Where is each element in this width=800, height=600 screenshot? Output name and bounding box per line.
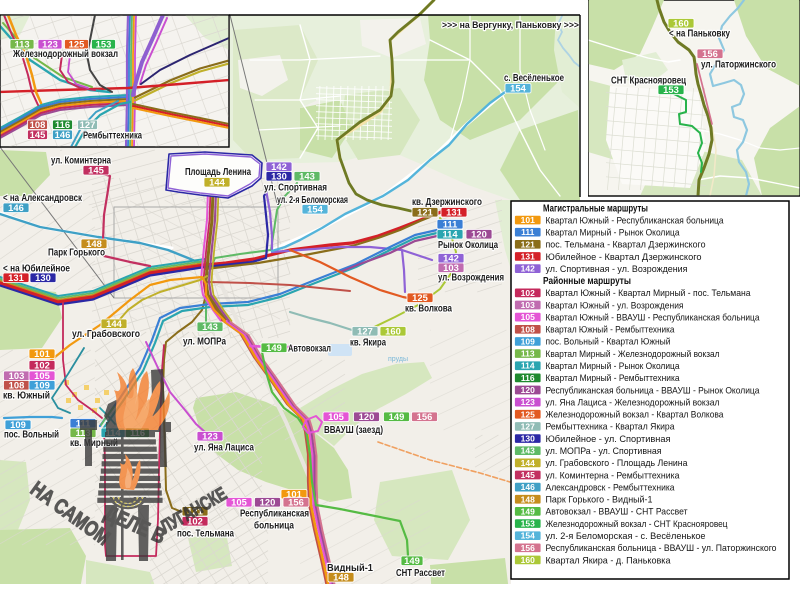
svg-text:121: 121 <box>417 206 433 217</box>
svg-text:ул. Возрождения: ул. Возрождения <box>438 273 504 284</box>
svg-text:130: 130 <box>35 272 51 283</box>
svg-text:153: 153 <box>663 84 679 95</box>
svg-text:123: 123 <box>521 397 535 407</box>
svg-text:143: 143 <box>521 446 535 456</box>
svg-text:142: 142 <box>521 264 535 274</box>
svg-text:Рембыттехника - Квартал Якира: Рембыттехника - Квартал Якира <box>546 422 676 433</box>
svg-text:кв. Якира: кв. Якира <box>350 338 386 349</box>
svg-text:153: 153 <box>521 519 535 529</box>
svg-text:ул. МОПРа: ул. МОПРа <box>183 337 226 348</box>
svg-text:109: 109 <box>34 379 50 390</box>
svg-text:105: 105 <box>328 411 344 422</box>
svg-text:120: 120 <box>521 385 535 395</box>
svg-text:125: 125 <box>412 292 428 303</box>
svg-text:Железнодорожный вокзал - СНТ К: Железнодорожный вокзал - СНТ Красноярове… <box>546 519 728 530</box>
svg-text:пос. Вольный - Квартал Южный: пос. Вольный - Квартал Южный <box>546 337 671 348</box>
svg-text:145: 145 <box>521 470 535 480</box>
svg-text:123: 123 <box>42 38 58 49</box>
svg-text:103: 103 <box>443 262 459 273</box>
svg-text:Республиканская больница - ВВА: Республиканская больница - ВВАУШ - ул. П… <box>546 543 777 554</box>
svg-text:121: 121 <box>521 239 535 249</box>
svg-text:Юбилейное - ул. Спортивная: Юбилейное - ул. Спортивная <box>546 434 671 445</box>
svg-text:Рынок Околица: Рынок Околица <box>438 240 498 251</box>
svg-text:143: 143 <box>299 170 315 181</box>
svg-text:102: 102 <box>34 359 50 370</box>
svg-text:< на Паньковку: < на Паньковку <box>669 29 730 40</box>
svg-text:Квартал Южный - ВВАУШ - Респуб: Квартал Южный - ВВАУШ - Республиканская … <box>546 313 761 324</box>
svg-text:Рембыттехника: Рембыттехника <box>83 130 142 142</box>
svg-text:120: 120 <box>260 496 276 507</box>
svg-text:113: 113 <box>521 349 535 359</box>
svg-text:131: 131 <box>8 272 24 283</box>
svg-text:127: 127 <box>521 421 535 431</box>
svg-text:Железнодорожный вокзал - Кварт: Железнодорожный вокзал - Квартал Волкова <box>546 410 725 421</box>
svg-text:Квартал Мирный - Железнодорожн: Квартал Мирный - Железнодорожный вокзал <box>546 349 720 360</box>
svg-text:Республиканская больница - ВВА: Республиканская больница - ВВАУШ - Рынок… <box>546 385 761 396</box>
svg-text:109: 109 <box>521 336 535 346</box>
svg-text:125: 125 <box>521 409 535 419</box>
svg-text:154: 154 <box>521 531 535 541</box>
svg-text:113: 113 <box>14 38 29 49</box>
svg-text:146: 146 <box>55 129 71 140</box>
svg-text:кв. Южный: кв. Южный <box>3 391 50 402</box>
svg-text:Автовокзал - ВВАУШ - СНТ Рассв: Автовокзал - ВВАУШ - СНТ Рассвет <box>546 507 689 518</box>
svg-text:123: 123 <box>202 430 218 441</box>
svg-text:153: 153 <box>96 38 112 49</box>
svg-text:пос. Тельмана: пос. Тельмана <box>177 529 234 540</box>
svg-text:Квартал Мирный - Рынок Околица: Квартал Мирный - Рынок Околица <box>546 361 681 372</box>
svg-text:больница: больница <box>254 520 294 532</box>
svg-text:ВВАУШ (заезд): ВВАУШ (заезд) <box>324 425 383 436</box>
svg-text:Юбилейное - Квартал Дзержин: Юбилейное - Квартал Дзержинского <box>546 252 702 263</box>
svg-text:116: 116 <box>521 373 535 383</box>
svg-text:160: 160 <box>521 555 535 565</box>
svg-text:127: 127 <box>357 325 373 336</box>
svg-text:148: 148 <box>521 494 535 504</box>
svg-text:160: 160 <box>385 325 401 336</box>
svg-text:ул. МОПРа - ул. Спортивная: ул. МОПРа - ул. Спортивная <box>546 446 662 457</box>
svg-text:Квартал Южный - Квартал Мирный: Квартал Южный - Квартал Мирный - пос. Те… <box>546 288 752 299</box>
svg-text:130: 130 <box>271 170 287 181</box>
svg-text:160: 160 <box>673 17 689 28</box>
svg-text:105: 105 <box>231 496 247 507</box>
svg-text:131: 131 <box>521 251 535 261</box>
svg-text:144: 144 <box>106 318 122 329</box>
svg-text:149: 149 <box>389 411 405 422</box>
svg-text:154: 154 <box>307 203 323 214</box>
svg-text:101: 101 <box>521 215 535 225</box>
svg-text:ул. Яна Лациса - Железнодорожн: ул. Яна Лациса - Железнодорожный вокзал <box>546 397 720 408</box>
svg-text:пос. Тельмана - Квартал Дзержи: пос. Тельмана - Квартал Дзержинского <box>546 240 706 251</box>
svg-text:кв. Волкова: кв. Волкова <box>405 304 452 315</box>
svg-text:ул. Яна Лациса: ул. Яна Лациса <box>194 443 254 454</box>
svg-text:ул. Коминтерна - Рембыттехника: ул. Коминтерна - Рембыттехника <box>546 470 681 481</box>
svg-text:114: 114 <box>442 228 458 239</box>
svg-text:149: 149 <box>521 506 535 516</box>
svg-text:148: 148 <box>86 238 102 249</box>
svg-text:пос. Вольный: пос. Вольный <box>4 430 59 441</box>
svg-text:103: 103 <box>521 300 535 310</box>
svg-text:Автовокзал: Автовокзал <box>288 344 331 355</box>
svg-text:СНТ Рассвет: СНТ Рассвет <box>396 568 445 579</box>
svg-text:Парк Горького: Парк Горького <box>48 248 105 259</box>
svg-text:Районные маршруты: Районные маршруты <box>543 276 631 287</box>
svg-text:Магистральные маршруты: Магистральные маршруты <box>543 203 648 214</box>
svg-text:146: 146 <box>8 202 24 213</box>
svg-text:131: 131 <box>446 206 462 217</box>
svg-text:143: 143 <box>202 321 218 332</box>
svg-text:Квартал Якира - д. Паньковка: Квартал Якира - д. Паньковка <box>546 555 672 566</box>
svg-text:105: 105 <box>521 312 535 322</box>
svg-text:149: 149 <box>404 555 420 566</box>
svg-text:111: 111 <box>521 227 535 237</box>
svg-text:ул. Грабовского: ул. Грабовского <box>72 328 140 340</box>
svg-text:101: 101 <box>34 348 50 359</box>
svg-text:ул. Паторжинского: ул. Паторжинского <box>701 60 776 71</box>
svg-text:Квартал Южный - Рембыттехника: Квартал Южный - Рембыттехника <box>546 325 676 336</box>
svg-text:Квартал Южный - ул. Возрождени: Квартал Южный - ул. Возрождения <box>546 300 684 311</box>
svg-text:102: 102 <box>521 288 535 298</box>
svg-text:ул. Грабовского - Площадь Лени: ул. Грабовского - Площадь Ленина <box>546 458 689 469</box>
svg-text:>>> на Вергунку, Паньковку >>>: >>> на Вергунку, Паньковку >>> <box>442 20 579 30</box>
svg-text:145: 145 <box>88 164 104 175</box>
svg-text:120: 120 <box>359 411 375 422</box>
svg-text:Железнодорожный вокзал: Железнодорожный вокзал <box>12 49 118 60</box>
svg-text:145: 145 <box>30 129 46 140</box>
svg-text:114: 114 <box>521 361 535 371</box>
svg-text:Александровск - Рембыттехника: Александровск - Рембыттехника <box>546 482 676 493</box>
svg-text:108: 108 <box>9 379 25 390</box>
svg-text:156: 156 <box>417 411 433 422</box>
svg-text:ул. 2-я Беломорская - с. Весёл: ул. 2-я Беломорская - с. Весёленькое <box>546 531 706 542</box>
svg-text:144: 144 <box>521 458 535 468</box>
svg-text:156: 156 <box>288 496 304 507</box>
svg-text:149: 149 <box>266 342 282 353</box>
svg-text:ул. Спортивная - ул. Возрожден: ул. Спортивная - ул. Возрождения <box>546 264 688 275</box>
svg-text:Квартал Мирный - Рембыттехника: Квартал Мирный - Рембыттехника <box>546 373 681 384</box>
svg-text:148: 148 <box>333 571 349 582</box>
svg-text:108: 108 <box>521 324 535 334</box>
svg-text:Парк Горького - Видный-1: Парк Горького - Видный-1 <box>546 495 653 506</box>
svg-text:ул. Спортивная: ул. Спортивная <box>264 183 327 194</box>
svg-text:156: 156 <box>702 48 718 59</box>
svg-text:125: 125 <box>69 38 85 49</box>
svg-text:130: 130 <box>521 434 535 444</box>
svg-text:127: 127 <box>80 119 96 130</box>
svg-text:Квартал Мирный - Рынок Околица: Квартал Мирный - Рынок Околица <box>546 228 681 239</box>
svg-text:144: 144 <box>209 176 225 187</box>
svg-text:Квартал Южный - Республиканска: Квартал Южный - Республиканская больница <box>546 215 725 226</box>
svg-text:154: 154 <box>510 82 526 93</box>
svg-text:146: 146 <box>521 482 535 492</box>
svg-text:109: 109 <box>10 419 26 430</box>
svg-text:пруды: пруды <box>388 356 408 363</box>
svg-text:120: 120 <box>471 228 487 239</box>
svg-text:Республиканская: Республиканская <box>240 508 309 520</box>
svg-text:156: 156 <box>521 543 535 553</box>
